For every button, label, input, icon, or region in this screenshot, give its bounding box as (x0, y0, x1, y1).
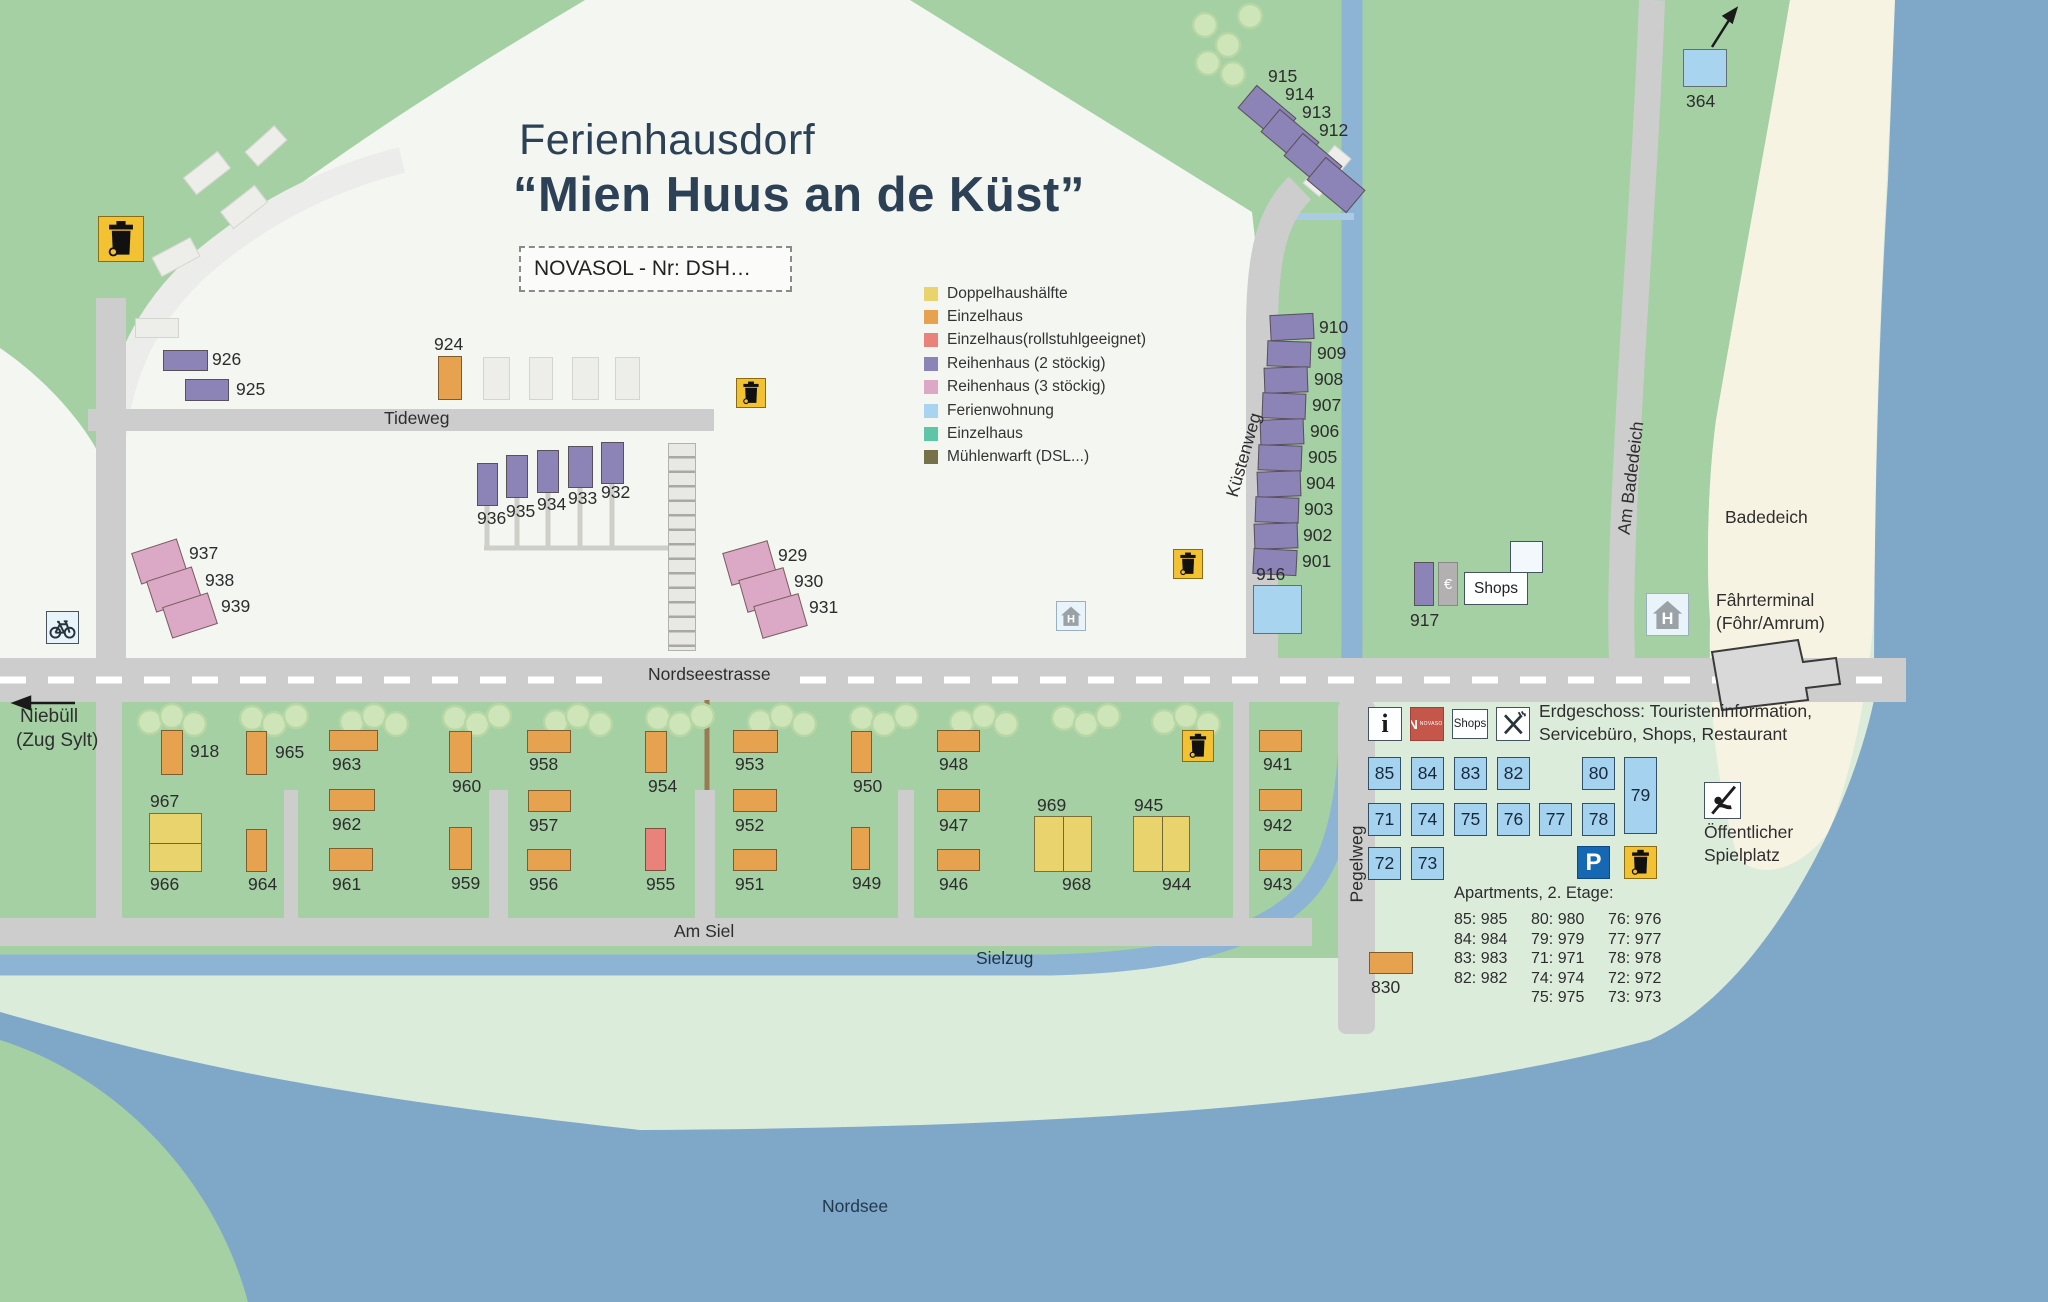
holiday-village-map: Ferienhausdorf “Mien Huus an de Küst” NO… (0, 0, 2048, 1302)
tree (972, 704, 996, 728)
house-label: 959 (451, 873, 480, 894)
apartment-mapping: 74: 974 (1531, 969, 1608, 989)
svg-text:H: H (1662, 610, 1674, 628)
apartment-unit-80: 80 (1582, 757, 1615, 790)
nova-icon: NNOVASOL (1410, 707, 1444, 741)
placeholder-house (135, 318, 179, 338)
house-941 (1259, 730, 1302, 752)
house-label: 956 (529, 874, 558, 895)
house-label: 955 (646, 874, 675, 895)
house-934 (537, 450, 559, 493)
house-label: 949 (852, 873, 881, 894)
tree (182, 712, 206, 736)
house-divider (1063, 817, 1064, 871)
legend-label: Einzelhaus (947, 308, 1023, 326)
house-954 (645, 731, 667, 773)
apartment-mapping: 78: 978 (1608, 949, 1661, 969)
house-label: 935 (506, 501, 535, 522)
house-918 (161, 730, 183, 775)
house-label: 936 (477, 508, 506, 529)
house-908 (1264, 366, 1309, 394)
legend-swatch (924, 427, 938, 441)
map-label: Pegelweg (1345, 826, 1368, 903)
house-label: 902 (1303, 525, 1332, 546)
house-label: 968 (1062, 874, 1091, 895)
house-933 (568, 446, 593, 488)
info-icon: i (1368, 707, 1402, 741)
apartment-unit-84: 84 (1411, 757, 1444, 790)
placeholder-house (615, 357, 640, 400)
legend-item: Einzelhaus (924, 422, 1146, 445)
tree (1193, 13, 1217, 37)
apartment-mapping: 85: 985 (1454, 910, 1531, 930)
legend-swatch (924, 333, 938, 347)
house-label: 947 (939, 815, 968, 836)
house-903 (1255, 496, 1300, 524)
apartment-unit-82: 82 (1497, 757, 1530, 790)
house-957 (528, 790, 571, 812)
house-949 (851, 827, 870, 870)
hstop-icon: H (1646, 593, 1689, 636)
house-955 (645, 828, 666, 871)
trash-icon (1182, 730, 1214, 762)
apartment-unit-76: 76 (1497, 803, 1530, 836)
house-830 (1369, 952, 1413, 974)
apartments-column: 85: 98584: 98483: 98382: 982 (1454, 910, 1531, 1008)
house-label: 945 (1134, 795, 1163, 816)
placeholder-house (529, 357, 553, 400)
tree (1174, 704, 1198, 728)
legend-label: Reihenhaus (3 stöckig) (947, 378, 1106, 396)
house-924 (438, 356, 462, 400)
apartment-mapping: 79: 979 (1531, 930, 1608, 950)
map-label: Sielzug (976, 947, 1033, 970)
house-label: 965 (275, 742, 304, 763)
apartment-mapping: 73: 973 (1608, 988, 1661, 1008)
tree (872, 712, 896, 736)
house-label: 903 (1304, 499, 1333, 520)
rest-icon (1496, 707, 1530, 741)
tree (1221, 62, 1245, 86)
house-label: 951 (735, 874, 764, 895)
map-label: Tideweg (384, 407, 450, 430)
svg-text:H: H (1067, 613, 1075, 625)
house-label: 937 (189, 543, 218, 564)
tree (994, 712, 1018, 736)
house-958 (527, 730, 571, 753)
house-960 (449, 731, 472, 773)
legend-swatch (924, 357, 938, 371)
apartment-unit-77: 77 (1539, 803, 1572, 836)
apartments-list: Apartments, 2. Etage: 85: 98584: 98483: … (1454, 884, 1661, 1008)
house-divider (150, 843, 201, 844)
tree (668, 712, 692, 736)
tree (1152, 710, 1176, 734)
road-left-vertical (96, 298, 126, 660)
side-street (898, 790, 914, 918)
hstop-icon: H (1056, 601, 1086, 631)
house-945 (1133, 816, 1190, 872)
tree (770, 704, 794, 728)
map-label: (Zug Sylt) (16, 728, 98, 753)
house-label: 954 (648, 776, 677, 797)
trash-icon (1624, 846, 1657, 879)
house-952 (733, 789, 777, 812)
page-title: Ferienhausdorf “Mien Huus an de Küst” (519, 116, 1085, 223)
tree (792, 712, 816, 736)
tree (1052, 706, 1076, 730)
map-label: Fâhrterminal (Fôhr/Amrum) (1716, 589, 1825, 635)
side-street (1233, 702, 1249, 946)
house-904 (1257, 470, 1302, 498)
title-line2: “Mien Huus an de Küst” (513, 167, 1085, 223)
tree (690, 704, 714, 728)
house-label: 931 (809, 597, 838, 618)
house-label: 967 (150, 791, 179, 812)
house-label: 929 (778, 545, 807, 566)
legend: DoppelhaushälfteEinzelhausEinzelhaus(rol… (924, 282, 1146, 469)
tree (384, 712, 408, 736)
house-965 (246, 731, 267, 775)
house-905 (1258, 444, 1303, 472)
legend-label: Reihenhaus (2 stöckig) (947, 355, 1106, 373)
legend-label: Mühlenwarft (DSL...) (947, 448, 1089, 466)
house-label: 909 (1317, 343, 1346, 364)
legend-label: Einzelhaus (947, 425, 1023, 443)
apartment-unit-71: 71 (1368, 803, 1401, 836)
legend-label: Doppelhaushälfte (947, 285, 1068, 303)
tree (588, 712, 612, 736)
apartment-mapping: 82: 982 (1454, 969, 1531, 989)
apartments-heading: Apartments, 2. Etage: (1454, 884, 1661, 903)
road-am-siel (0, 918, 1312, 946)
apartment-unit-78: 78 (1582, 803, 1615, 836)
house-label: 933 (568, 488, 597, 509)
play-icon (1704, 782, 1741, 819)
apartment-unit-79: 79 (1624, 757, 1657, 834)
whitebox-icon (1510, 541, 1543, 573)
legend-item: Einzelhaus(rollstuhlgeeignet) (924, 329, 1146, 352)
house-label: 917 (1410, 610, 1439, 631)
house-959 (449, 827, 472, 870)
house-948 (937, 730, 980, 752)
house-label: 905 (1308, 447, 1337, 468)
house-916 (1253, 585, 1302, 634)
tree (850, 706, 874, 730)
apartment-mapping: 71: 971 (1531, 949, 1608, 969)
apartment-unit-74: 74 (1411, 803, 1444, 836)
placeholder-house (572, 357, 599, 400)
tree (362, 704, 386, 728)
house-label: 944 (1162, 874, 1191, 895)
legend-label: Einzelhaus(rollstuhlgeeignet) (947, 331, 1146, 349)
novasol-word: NOVASOL (1420, 721, 1444, 727)
house-label: 930 (794, 571, 823, 592)
apartment-unit-83: 83 (1454, 757, 1487, 790)
house-label: 932 (601, 482, 630, 503)
side-street (96, 702, 122, 946)
house-902 (1254, 522, 1299, 550)
tree (1196, 51, 1220, 75)
house-909 (1267, 340, 1312, 368)
shopbox-icon: Shops (1452, 709, 1488, 739)
house-910 (1269, 313, 1314, 341)
house-label: 960 (452, 776, 481, 797)
trash-icon (98, 216, 144, 262)
tree (1096, 704, 1120, 728)
house-950 (851, 731, 872, 773)
house-942 (1259, 789, 1302, 811)
house-label: 962 (332, 814, 361, 835)
side-street (695, 790, 715, 918)
house-label: 924 (434, 334, 463, 355)
house-label: 912 (1319, 120, 1348, 141)
house-label: 907 (1312, 395, 1341, 416)
tree (1216, 33, 1240, 57)
house-divider (1162, 817, 1163, 871)
house-947 (937, 789, 980, 812)
apartment-mapping: 83: 983 (1454, 949, 1531, 969)
bike-icon (46, 611, 79, 644)
novasol-n: N (1410, 717, 1418, 732)
legend-swatch (924, 450, 938, 464)
house-956 (527, 849, 571, 871)
house-932 (601, 442, 624, 484)
house-label: 939 (221, 596, 250, 617)
trash-icon (736, 378, 766, 408)
house-label: 948 (939, 754, 968, 775)
house-label: 364 (1686, 91, 1715, 112)
apartment-unit-73: 73 (1411, 847, 1444, 880)
legend-swatch (924, 287, 938, 301)
title-line1: Ferienhausdorf (519, 116, 1085, 165)
legend-item: Ferienwohnung (924, 399, 1146, 422)
map-label: Öffentlicher Spielplatz (1704, 821, 1793, 867)
apartment-unit-75: 75 (1454, 803, 1487, 836)
house-label: 961 (332, 874, 361, 895)
house-label: 906 (1310, 421, 1339, 442)
shopbox-icon: Shops (1464, 572, 1528, 605)
legend-item: Reihenhaus (2 stöckig) (924, 352, 1146, 375)
house-label: 953 (735, 754, 764, 775)
apartments-columns: 85: 98584: 98483: 98382: 98280: 98079: 9… (1454, 910, 1661, 1008)
side-street (284, 790, 298, 918)
legend-item: Mühlenwarft (DSL...) (924, 446, 1146, 469)
house-label: 908 (1314, 369, 1343, 390)
legend-label: Ferienwohnung (947, 402, 1054, 420)
house-364 (1683, 49, 1727, 87)
legend-item: Einzelhaus (924, 305, 1146, 328)
house-label: 966 (150, 874, 179, 895)
apartment-mapping: 72: 972 (1608, 969, 1661, 989)
apartment-mapping: 84: 984 (1454, 930, 1531, 950)
tree (487, 704, 511, 728)
apartments-column: 80: 98079: 97971: 97174: 97475: 975 (1531, 910, 1608, 1008)
house-label: 910 (1319, 317, 1348, 338)
tree (443, 706, 467, 730)
house-label: 969 (1037, 795, 1066, 816)
house-964 (246, 829, 267, 872)
house-label: 938 (205, 570, 234, 591)
map-label: Badedeich (1725, 506, 1808, 529)
apartment-mapping: 76: 976 (1608, 910, 1661, 930)
apartment-mapping: 75: 975 (1531, 988, 1608, 1008)
house-label: 830 (1371, 977, 1400, 998)
house-label: 934 (537, 494, 566, 515)
house-946 (937, 849, 980, 871)
trash-icon (1173, 549, 1203, 579)
house-962 (329, 789, 375, 811)
park-icon: P (1577, 846, 1610, 879)
house-label: 942 (1263, 815, 1292, 836)
house-917 (1414, 562, 1434, 606)
house-936 (477, 463, 498, 506)
house-label: 926 (212, 349, 241, 370)
house-969 (1034, 816, 1092, 872)
house-906 (1260, 418, 1305, 446)
legend-swatch (924, 310, 938, 324)
house-925 (185, 379, 229, 401)
tree (240, 706, 264, 730)
apartment-unit-72: 72 (1368, 847, 1401, 880)
house-label: 918 (190, 741, 219, 762)
novasol-number-box: NOVASOL - Nr: DSH… (519, 246, 792, 292)
house-953 (733, 730, 778, 753)
tree (894, 704, 918, 728)
side-street (489, 790, 508, 918)
house-951 (733, 849, 777, 871)
map-label: Nordsee (822, 1195, 888, 1218)
placeholder-house (483, 357, 510, 400)
house-label: 904 (1306, 473, 1335, 494)
euro-icon: € (1438, 562, 1458, 606)
apartments-column: 76: 97677: 97778: 97872: 97273: 973 (1608, 910, 1661, 1008)
map-label: Erdgeschoss: Touristeninformation, Servi… (1539, 700, 1812, 746)
house-label: 963 (332, 754, 361, 775)
house-label: 916 (1256, 564, 1285, 585)
house-label: 957 (529, 815, 558, 836)
house-926 (163, 350, 208, 371)
tree (160, 704, 184, 728)
tree (138, 710, 162, 734)
house-label: 946 (939, 874, 968, 895)
tree (646, 706, 670, 730)
legend-swatch (924, 380, 938, 394)
house-967 (149, 813, 202, 872)
house-label: 952 (735, 815, 764, 836)
parking-strip (668, 443, 696, 651)
tree (284, 704, 308, 728)
house-935 (506, 455, 528, 498)
house-943 (1259, 849, 1302, 871)
legend-swatch (924, 404, 938, 418)
apartment-unit-85: 85 (1368, 757, 1401, 790)
apartment-mapping: 80: 980 (1531, 910, 1608, 930)
house-907 (1262, 392, 1307, 420)
house-label: 943 (1263, 874, 1292, 895)
tree (566, 704, 590, 728)
map-label: Niebüll (20, 704, 78, 729)
house-label: 958 (529, 754, 558, 775)
map-label: Am Siel (674, 920, 734, 943)
house-label: 941 (1263, 754, 1292, 775)
house-961 (329, 848, 373, 871)
tree (1238, 4, 1262, 28)
apartment-mapping: 77: 977 (1608, 930, 1661, 950)
house-label: 950 (853, 776, 882, 797)
legend-item: Reihenhaus (3 stöckig) (924, 376, 1146, 399)
house-label: 964 (248, 874, 277, 895)
house-label: 925 (236, 379, 265, 400)
map-label: Nordseestrasse (648, 663, 771, 686)
house-label: 901 (1302, 551, 1331, 572)
tree (1074, 712, 1098, 736)
legend-item: Doppelhaushälfte (924, 282, 1146, 305)
house-963 (329, 730, 378, 751)
